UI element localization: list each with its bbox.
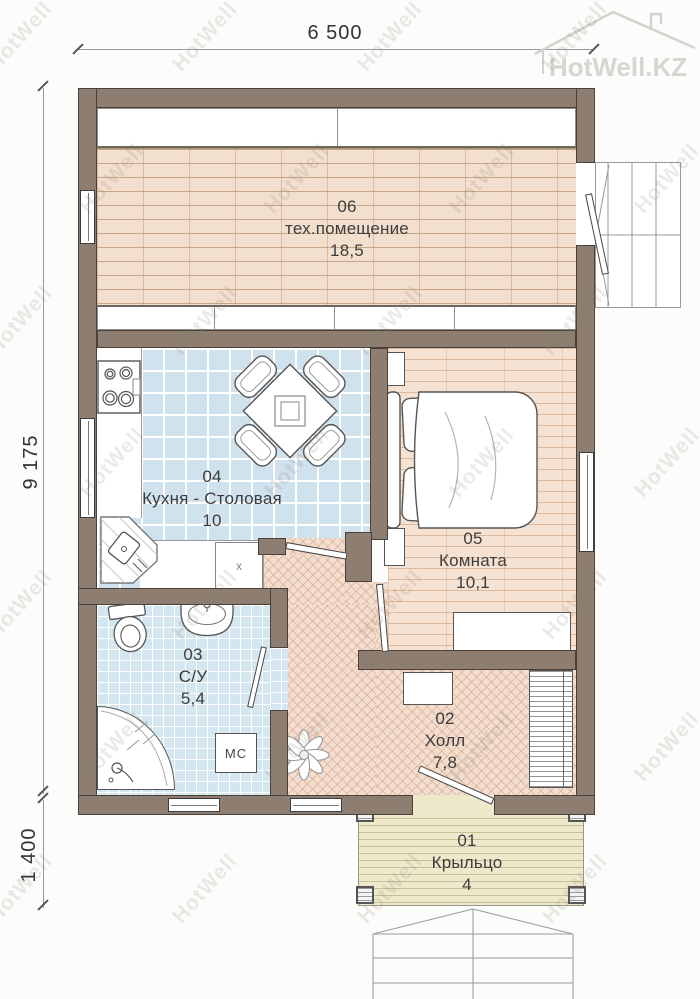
wall-kitchen-bedroom [370,348,388,540]
room-label-05: 05 Комната 10,1 [398,528,548,594]
floor-bath-doorway [270,648,288,710]
shelf-divider [454,307,455,329]
wall-bathroom-top [78,588,288,605]
porch-post [568,886,586,904]
room-name: тех.помещение [272,218,422,240]
dimension-porch-height: 1 400 [18,815,42,895]
room-area: 5,4 [118,688,268,710]
dimension-line-top [78,49,594,50]
room-name: Крыльцо [392,852,542,874]
watermark-text: HotWell [630,423,700,502]
room-name: Кухня - Столовая [132,488,292,510]
room-area: 10 [132,510,292,532]
watermark-text: HotWell [0,0,58,77]
window-bedroom-right [579,452,594,552]
room-number: 05 [398,528,548,550]
dining-table-set [228,349,352,473]
tech-top-shelf [97,108,576,148]
room-label-03: 03 С/У 5,4 [118,644,268,710]
room-number: 04 [132,466,292,488]
floor-plan: x [0,0,700,999]
hall-cabinet [403,672,453,705]
room-label-04: 04 Кухня - Столовая 10 [132,466,292,532]
kitchen-cabinet-label: x [236,559,242,573]
watermark-text: HotWell [168,0,243,77]
window-tech-left [80,190,95,244]
shelf-divider [334,307,335,329]
window-kitchen-left [80,418,95,518]
room-label-06: 06 тех.помещение 18,5 [272,196,422,262]
watermark-text: HotWell [0,565,58,644]
wall-corner-stub [345,532,372,582]
nightstand [385,352,405,386]
room-area: 4 [392,874,542,896]
wall-tech-divider [97,330,576,348]
washing-machine-label: МС [225,746,247,761]
bathroom-sink [178,599,236,639]
dimension-height: 9 175 [20,422,44,502]
shelf-divider [214,307,215,329]
wall-bathroom-right-lower [270,710,288,796]
kitchen-cabinet-box: x [215,542,263,590]
room-name: Комната [398,550,548,572]
shelf-divider [337,109,338,146]
wardrobe [529,670,573,788]
watermark-text: HotWell [168,849,243,928]
porch-steps [372,906,574,999]
room-name: С/У [118,666,268,688]
watermark-text: HotWell [0,281,58,360]
room-area: 10,1 [398,572,548,594]
watermark-text: HotWell [630,707,700,786]
room-area: 18,5 [272,240,422,262]
room-label-02: 02 Холл 7,8 [370,708,520,774]
watermark-text: HotWell [538,0,613,77]
dimension-width: 6 500 [270,22,400,45]
shower-detail [97,706,175,790]
wall-bathroom-right-upper [270,588,288,648]
room-name: Холл [370,730,520,752]
room-label-01: 01 Крыльцо 4 [392,830,542,896]
wall-top [78,88,595,108]
window-hall-bottom [290,798,342,812]
room-number: 03 [118,644,268,666]
stove [97,360,141,414]
room-number: 01 [392,830,542,852]
tech-bottom-shelf [97,305,576,330]
porch-post [356,886,374,904]
dimension-line-porch [43,800,44,908]
room-area: 7,8 [370,752,520,774]
exterior-stairs [595,162,681,308]
room-number: 02 [370,708,520,730]
wall-kitchen-hall-stub [258,538,286,555]
window-bathroom-bottom [168,798,220,812]
wall-bedroom-bottom [358,650,576,670]
bed [385,386,540,534]
room-number: 06 [272,196,422,218]
logo-text: HotWell.KZ [549,52,687,82]
dresser [453,612,571,652]
washing-machine: МС [215,733,257,773]
